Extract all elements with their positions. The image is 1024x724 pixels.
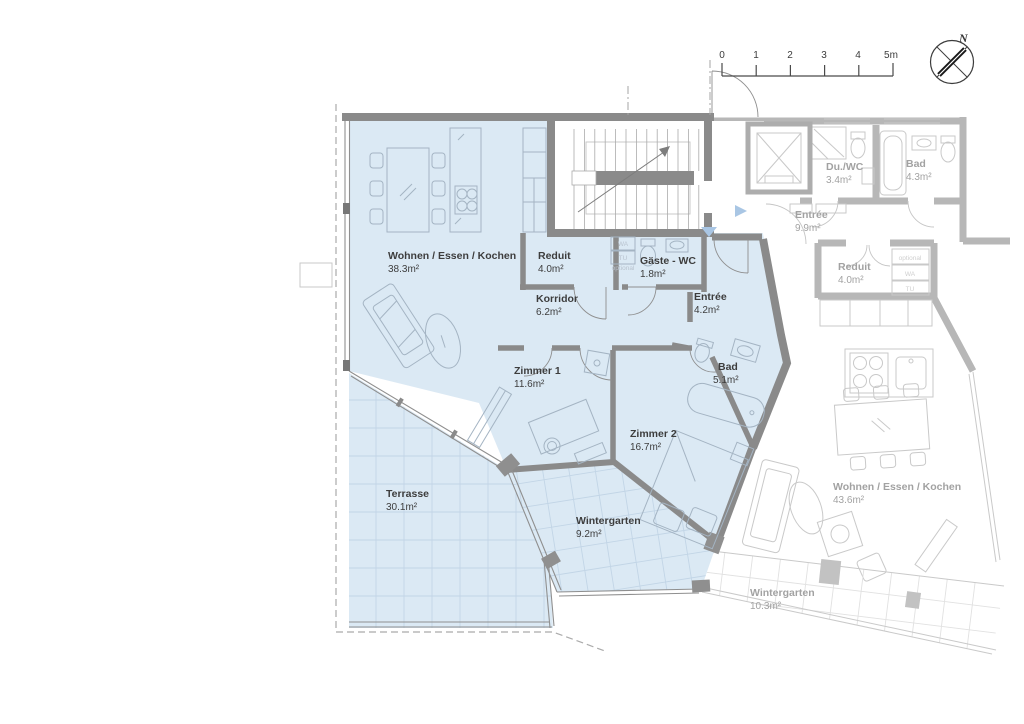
- room-area: 1.8m²: [640, 269, 666, 280]
- coffee-table: [817, 511, 862, 556]
- highlighted-apartment: WA TU optional: [342, 113, 787, 639]
- dryer-label: TU: [906, 286, 915, 293]
- room-area: 43.6m²: [833, 495, 865, 506]
- room-area: 9.9m²: [795, 223, 821, 234]
- north-compass: N: [931, 31, 974, 84]
- shower-icon: [812, 127, 846, 159]
- room-area: 16.7m²: [630, 442, 662, 453]
- room-label: Bad: [718, 361, 738, 373]
- room-label: Du./WC: [826, 161, 864, 173]
- sofa-icon: [742, 459, 800, 554]
- elevator: [748, 124, 810, 192]
- washer-label: WA: [618, 241, 629, 248]
- floorplan-canvas: optional WA TU: [0, 0, 1024, 724]
- scale-tick-label: 0: [719, 50, 725, 61]
- room-area: 6.2m²: [536, 307, 562, 318]
- scale-bar: 0 1 2 3 4 5m: [719, 50, 898, 76]
- room-area: 4.3m²: [906, 172, 932, 183]
- washer-dryer-box: optional WA TU: [892, 249, 929, 295]
- room-label: Wohnen / Essen / Kochen: [388, 250, 516, 262]
- room-label: Entrée: [694, 291, 727, 303]
- room-label: Gäste - WC: [640, 255, 696, 267]
- kitchen-counter: [820, 300, 932, 326]
- sink-icon: [862, 168, 874, 184]
- room-area: 30.1m²: [386, 502, 418, 513]
- room-label: Wintergarten: [576, 515, 641, 527]
- room-area: 3.4m²: [826, 175, 852, 186]
- room-label: Reduit: [838, 261, 871, 273]
- room-label: Korridor: [536, 293, 578, 305]
- room-area: 4.0m²: [838, 275, 864, 286]
- optional-label: optional: [612, 265, 635, 272]
- scale-tick-label: 5m: [884, 50, 898, 61]
- room-area: 10.3m²: [750, 601, 782, 612]
- room-label: Bad: [906, 158, 926, 170]
- neighbor-wintergarten: [691, 502, 1024, 700]
- room-label: Wintergarten: [750, 587, 815, 599]
- stair-landing: [596, 171, 694, 185]
- room-area: 4.2m²: [694, 305, 720, 316]
- sideboard: [915, 519, 957, 572]
- room-label: Terrasse: [386, 488, 429, 500]
- scale-tick-label: 4: [855, 50, 861, 61]
- scale-tick-label: 3: [821, 50, 827, 61]
- room-label: Reduit: [538, 250, 571, 262]
- optional-label: optional: [899, 255, 922, 262]
- room-area: 4.0m²: [538, 264, 564, 275]
- room-label: Wohnen / Essen / Kochen: [833, 481, 961, 493]
- building-entry-door: [712, 71, 758, 117]
- toilet-icon: [851, 132, 865, 158]
- toilet-icon: [941, 136, 955, 162]
- exterior-element: [300, 263, 332, 287]
- facade-post: [343, 360, 350, 371]
- facade-post: [343, 203, 350, 214]
- room-label: Zimmer 2: [630, 428, 677, 440]
- room-area: 38.3m²: [388, 264, 420, 275]
- north-label: N: [958, 31, 969, 45]
- room-label: Zimmer 1: [514, 365, 561, 377]
- scale-tick-label: 1: [753, 50, 759, 61]
- scale-tick-label: 2: [787, 50, 793, 61]
- washer-label: WA: [905, 271, 916, 278]
- dining-table: [833, 383, 930, 471]
- armchair-icon: [856, 552, 887, 582]
- room-area: 5.1m²: [713, 375, 739, 386]
- dryer-label: TU: [619, 255, 628, 262]
- bathtub-icon: [880, 131, 906, 195]
- room-label: Entrée: [795, 209, 828, 221]
- room-area: 9.2m²: [576, 529, 602, 540]
- floorplan-svg: optional WA TU: [0, 0, 1024, 724]
- room-area: 11.6m²: [514, 379, 545, 390]
- sink-icon: [912, 136, 936, 150]
